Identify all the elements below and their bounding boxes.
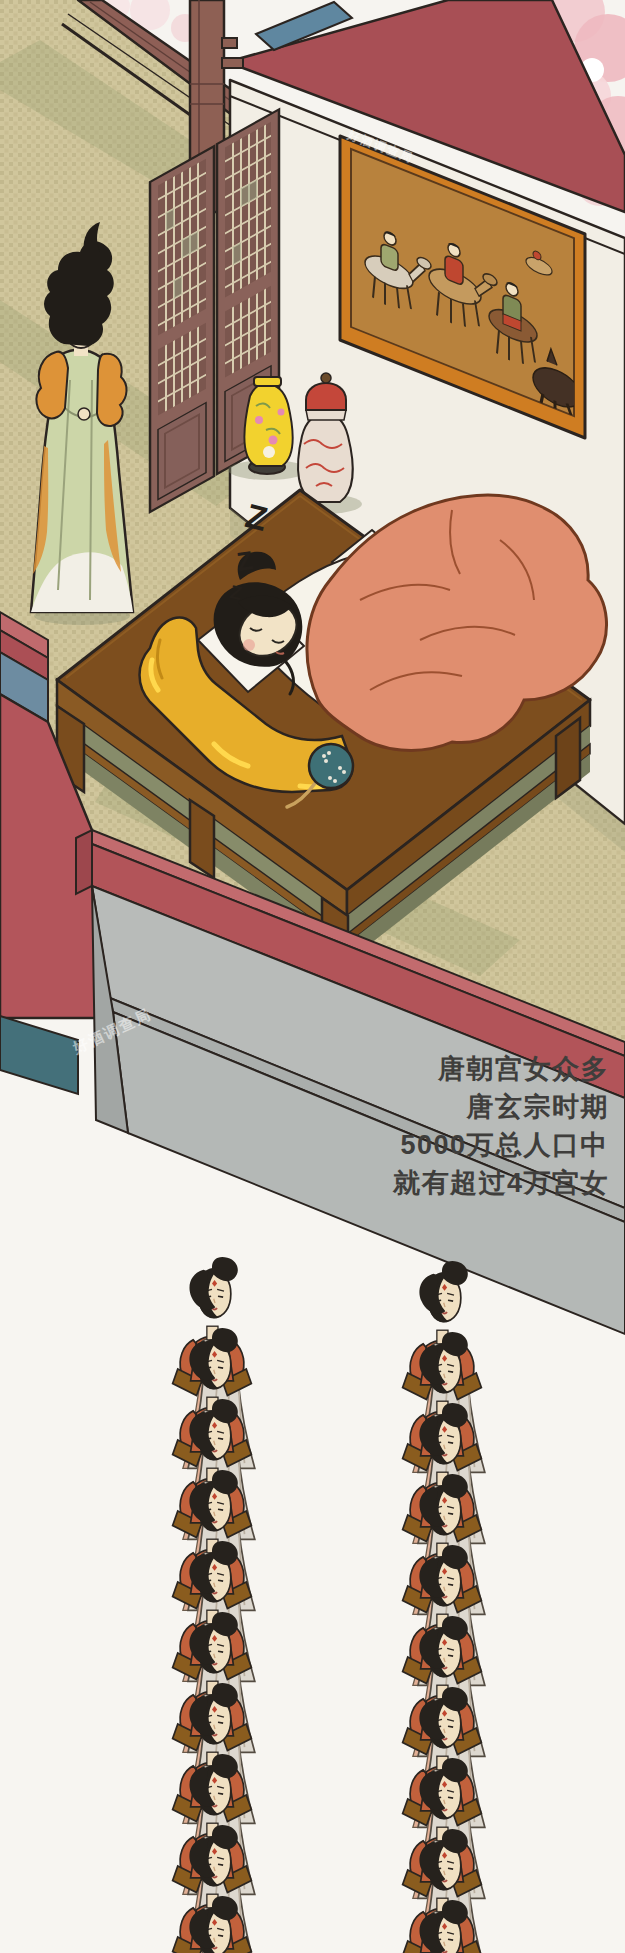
caption-line: 唐朝宫女众多 [393,1050,609,1088]
caption-line: 就有超过4万宫女 [393,1164,609,1202]
caption-block: 唐朝宫女众多 唐玄宗时期 5000万总人口中 就有超过4万宫女 [393,1050,609,1202]
palace-women-column-right [403,1261,485,1953]
comic-page: Z Z Z 好酒调查局 好酒调查局 唐朝宫女众多 唐玄宗时期 5000万总人口中… [0,0,625,1953]
illustration-canvas [0,0,625,1953]
screen-panel-left [150,146,214,512]
caption-line: 5000万总人口中 [393,1126,609,1164]
caption-line: 唐玄宗时期 [393,1088,609,1126]
palace-women-column-left [173,1257,255,1953]
